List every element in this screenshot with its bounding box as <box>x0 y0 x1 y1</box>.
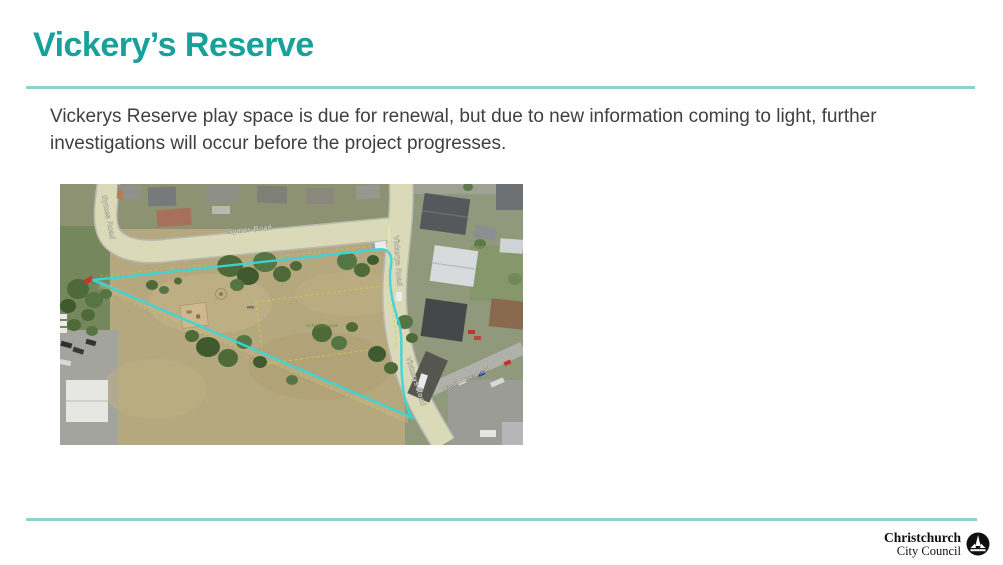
slide: Vickery’s Reserve Vickerys Reserve play … <box>0 0 1003 565</box>
title-divider <box>26 86 975 89</box>
logo-line2: City Council <box>884 545 961 558</box>
footer-divider <box>26 518 977 521</box>
ccc-logo-text: Christchurch City Council <box>884 531 961 557</box>
logo-line1: Christchurch <box>884 531 961 545</box>
map-label-vickerys-reserve: Vickerys Reserve <box>306 323 339 328</box>
intro-paragraph: Vickerys Reserve play space is due for r… <box>50 103 966 157</box>
page-title: Vickery’s Reserve <box>33 26 314 65</box>
ccc-logo: Christchurch City Council <box>884 531 990 557</box>
aerial-map-image: Symes Road Symes Road Vickerys Road Vick… <box>60 184 523 445</box>
ccc-logo-icon <box>966 532 990 556</box>
reserve-aerial-map: Symes Road Symes Road Vickerys Road Vick… <box>60 184 523 445</box>
